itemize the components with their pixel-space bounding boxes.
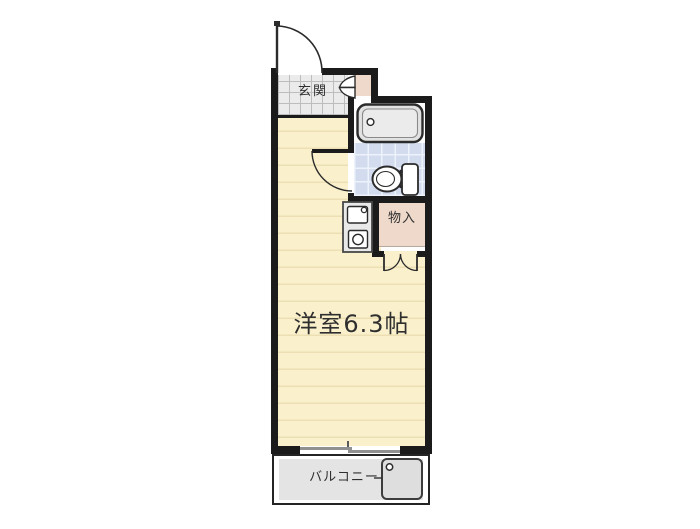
entrance-step-edge (278, 115, 354, 118)
wall-washroom-left-upper (348, 95, 354, 153)
wall-bath-top (371, 96, 432, 103)
wall-closet-bottom-right (417, 251, 432, 257)
bathtub-zone-floor (354, 103, 425, 143)
wall-closet-bottom-left (372, 251, 384, 257)
wall-bottom-left (271, 446, 300, 454)
washroom-doorway (348, 153, 354, 193)
balcony-label: バルコニー (294, 471, 394, 484)
washroom-tile-floor (354, 143, 425, 196)
window-sash-left (300, 447, 352, 450)
wall-closet-divider (372, 196, 379, 257)
wall-top-entrance (322, 68, 378, 75)
entrance-door (274, 21, 322, 73)
wall-washroom-bottom (348, 196, 432, 203)
utility-alcove (354, 75, 371, 96)
wall-left (271, 68, 278, 454)
entrance-label: 玄関 (278, 85, 348, 98)
main-room-label: 洋室6.3帖 (278, 312, 425, 336)
window-center-tick (347, 441, 349, 447)
entrance-door-arc (277, 26, 322, 73)
window-sash-right (348, 450, 400, 453)
wall-bottom-right (400, 446, 432, 454)
floor-plan: 玄関 物入 洋室6.3帖 バルコニー (0, 0, 700, 529)
storage-label: 物入 (379, 212, 425, 225)
entrance-door-hinge (274, 21, 280, 26)
wall-right (425, 96, 432, 454)
